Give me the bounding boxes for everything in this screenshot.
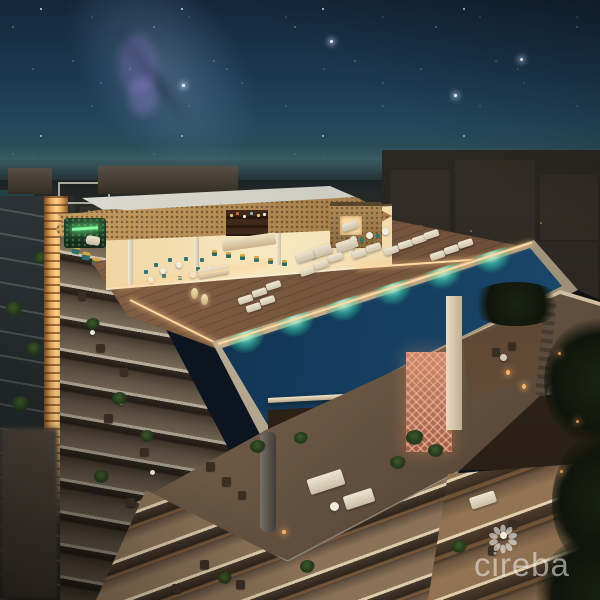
watermark-text: cireba: [474, 546, 570, 584]
plant: [452, 540, 467, 553]
star: [182, 84, 185, 87]
plant: [6, 302, 22, 316]
bar-bottle: [230, 214, 233, 217]
dining-chair: [184, 257, 188, 261]
bar-stool: [282, 260, 287, 266]
green-plant-wall: [64, 218, 106, 248]
plant: [428, 444, 444, 457]
plant: [112, 392, 127, 405]
plant: [250, 440, 266, 453]
cafe-table: [150, 470, 155, 475]
roof-core-slab: [98, 166, 238, 194]
wicker-chair: [236, 580, 245, 589]
floor-lamp: [201, 294, 208, 305]
window-light: [470, 230, 472, 232]
window-light: [540, 222, 542, 224]
lounge-chair: [85, 235, 100, 246]
dining-chair: [492, 348, 500, 356]
star: [454, 94, 457, 97]
foreground-concrete-edge: [0, 428, 58, 600]
plant: [218, 572, 232, 584]
lantern-light: [506, 370, 510, 375]
wicker-chair: [96, 344, 105, 352]
dining-chair: [376, 234, 380, 238]
bar-bottle: [263, 213, 266, 216]
coffee-table: [330, 502, 339, 511]
lantern-light: [522, 384, 526, 389]
bar-bottle: [250, 212, 253, 215]
dining-chair: [200, 258, 204, 262]
bar-bottle: [236, 212, 239, 215]
building-silhouette: [455, 160, 535, 245]
bar-stool: [254, 256, 259, 262]
bar-stool: [212, 250, 217, 256]
garden-light: [560, 470, 563, 473]
bar-bottle: [257, 214, 260, 217]
watermark: cireba: [468, 522, 600, 592]
plant: [390, 456, 406, 469]
lantern-light: [282, 530, 286, 534]
plant: [86, 318, 100, 330]
dining-table: [500, 354, 507, 361]
bar-bottle: [243, 215, 246, 218]
building-silhouette: [540, 175, 598, 240]
wicker-chair: [140, 448, 149, 456]
dining-table: [366, 232, 373, 239]
bar-stool: [226, 252, 231, 258]
star: [520, 58, 523, 61]
dining-chair: [154, 263, 158, 267]
wicker-chair: [126, 498, 135, 507]
plant: [140, 430, 154, 442]
wicker-chair: [104, 414, 113, 423]
plant: [94, 470, 109, 483]
plant: [26, 342, 42, 356]
wicker-chair: [222, 477, 231, 486]
architectural-rendering: cireba: [0, 0, 600, 600]
balcony-chair: [81, 251, 90, 260]
plant: [12, 396, 30, 411]
plant: [406, 430, 424, 445]
wicker-chair: [206, 462, 215, 471]
wicker-chair: [78, 292, 86, 300]
white-pillar: [446, 296, 462, 430]
garden-light: [558, 352, 561, 355]
dining-table: [382, 228, 389, 235]
garden-light: [576, 420, 579, 423]
bar-stool: [268, 258, 273, 264]
palm-canopy: [468, 282, 564, 326]
plant: [294, 432, 308, 444]
floor-lamp: [191, 288, 198, 299]
cafe-table: [176, 262, 182, 268]
wicker-chair: [238, 491, 246, 499]
dining-chair: [360, 238, 364, 242]
wicker-chair: [120, 368, 128, 376]
star: [330, 40, 333, 43]
wicker-chair: [200, 560, 209, 569]
cafe-table: [90, 330, 95, 335]
dining-chair: [168, 258, 172, 262]
dining-chair: [508, 342, 516, 350]
bar-stool: [240, 254, 245, 260]
dining-chair: [162, 274, 166, 278]
roof-block: [8, 168, 52, 194]
wicker-chair: [172, 584, 181, 593]
dining-chair: [144, 270, 148, 274]
plant: [300, 560, 315, 573]
